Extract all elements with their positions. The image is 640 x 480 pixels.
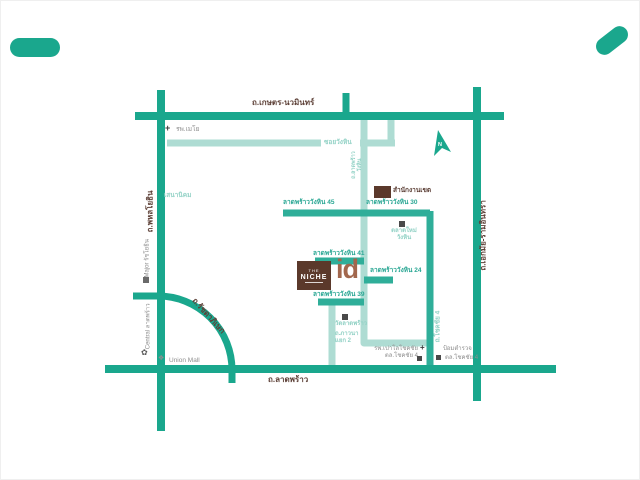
logo-id: id: [336, 254, 358, 285]
mall-flower-icon: ✿: [141, 349, 148, 357]
chokchai-market-icon-right: [436, 355, 441, 360]
place-label-chokchai-market: ตล.โชคชัย 4: [445, 355, 478, 362]
place-label-union-mall: Union Mall: [169, 357, 200, 364]
road-label-ladprao: ถ.ลาดพร้าว: [268, 376, 308, 385]
road-label-chokchai4: ถ.โชคชัย 4: [434, 299, 441, 355]
north-label: N: [438, 142, 442, 148]
soi-label-39: ลาดพร้าววังหิน 39: [313, 291, 365, 298]
hospital-cross-icon: +: [165, 124, 170, 133]
road-label-wanghin-soi: ซอยวังหิน: [323, 139, 353, 146]
market-icon: [399, 221, 405, 227]
road-label-ekamai: ถ.เอกมัย-รามอินทรา: [480, 180, 489, 290]
road-network: [0, 0, 640, 480]
place-label-wat-ladprao: วัดลาดพร้าว: [335, 321, 367, 328]
chokchai-market-icon-left: [417, 356, 422, 361]
road-label-phawana: ถ.ภาวนา แยก 2: [335, 331, 358, 344]
logo-rule: [305, 282, 323, 283]
temple-icon: [342, 314, 348, 320]
soi-label-45: ลาดพร้าววังหิน 45: [283, 199, 335, 206]
road-label-ladprao-wanghin: ถ.ลาดพร้าว วังหิน: [351, 139, 363, 191]
place-label-police-box: ป้อมตำรวจ: [443, 346, 472, 353]
place-label-mayo-hospital: รพ.เมโย: [176, 126, 199, 133]
logo-the: THE: [297, 268, 331, 273]
location-map: N ถ.เกษตร-นวมินทร์ ถ.พหลโยธิน ถ.เอกมัย-ร…: [0, 0, 640, 480]
cinema-icon: [143, 277, 149, 283]
road-label-sena-nikhom: เสนานิคม: [164, 192, 191, 199]
road-label-kaset: ถ.เกษตร-นวมินทร์: [252, 99, 314, 108]
paolo-hospital-cross-icon: +: [420, 344, 425, 352]
place-label-paolo: รพ.เปาโลโชคชัย ตล.โชคชัย 4: [368, 346, 418, 359]
soi-label-24: ลาดพร้าววังหิน 24: [370, 267, 422, 274]
district-office-icon: [374, 186, 391, 198]
place-label-district-office: สำนักงานเขต: [393, 187, 431, 194]
logo-niche: NICHE: [297, 274, 331, 281]
project-logo: THE NICHE: [297, 261, 331, 290]
place-label-market: ตลาดใหม่ วังหิน: [385, 228, 423, 241]
union-mall-icon: ❖: [158, 355, 164, 362]
soi-label-30: ลาดพร้าววังหิน 30: [366, 199, 418, 206]
north-arrow-icon: [434, 130, 451, 156]
